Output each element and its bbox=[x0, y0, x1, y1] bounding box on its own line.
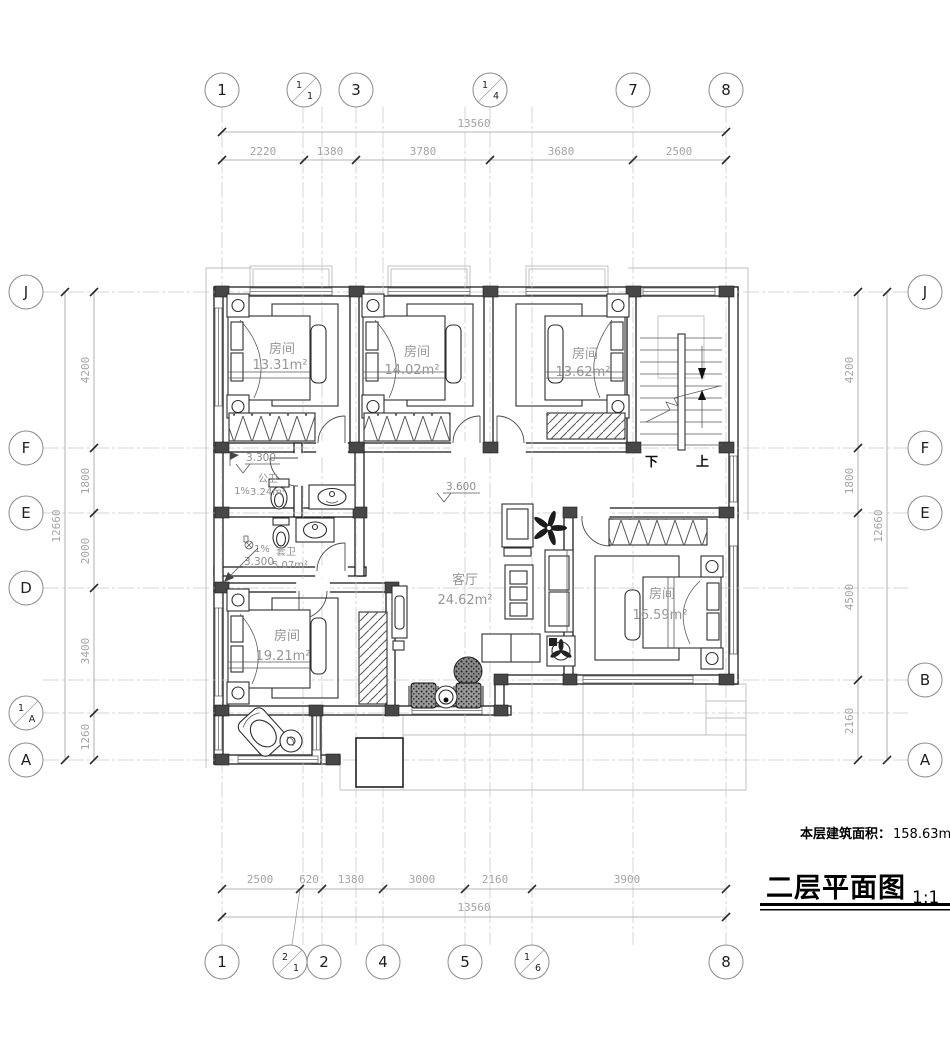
axis-label: 1 bbox=[482, 80, 488, 91]
axis-label: 1 bbox=[296, 80, 302, 91]
sink-icon bbox=[296, 518, 334, 542]
column bbox=[719, 442, 734, 453]
window bbox=[215, 608, 222, 696]
axis-label: 1 bbox=[293, 963, 299, 974]
column bbox=[309, 705, 323, 716]
dimension-ticks bbox=[61, 128, 891, 921]
column bbox=[563, 674, 577, 685]
stair-up-label: 上 bbox=[696, 455, 709, 470]
window bbox=[730, 456, 737, 502]
axis-label: J bbox=[922, 283, 927, 301]
level-label: 3.300 bbox=[246, 452, 276, 464]
dim-label: 2500 bbox=[666, 145, 693, 158]
axis-bubble: D bbox=[9, 571, 43, 605]
appliance-icon bbox=[547, 636, 575, 666]
level-triangle-icon bbox=[437, 493, 451, 502]
dim-label: 2220 bbox=[250, 145, 277, 158]
room-area: 14.02m² bbox=[384, 363, 439, 378]
axis-label: 2 bbox=[319, 953, 329, 971]
axis-label: E bbox=[920, 504, 929, 522]
dimension-lines: 13560 2220 1380 3780 3680 2500 13560 250… bbox=[50, 117, 891, 945]
axis-bubbles: 1 11 3 14 7 8 1 21 2 4 5 16 8 J F E D 1A… bbox=[9, 73, 942, 979]
dim-label: 3780 bbox=[410, 145, 437, 158]
room-area: 16.59m² bbox=[632, 608, 687, 623]
dim-label: 4200 bbox=[843, 357, 856, 384]
column bbox=[215, 507, 229, 518]
nightstand bbox=[227, 294, 249, 317]
column bbox=[719, 286, 734, 297]
dim-label: 2160 bbox=[482, 873, 509, 886]
dim-label: 620 bbox=[299, 873, 319, 886]
nightstand bbox=[607, 294, 629, 317]
round-table bbox=[435, 686, 457, 708]
column bbox=[494, 674, 508, 685]
axis-label: J bbox=[23, 283, 28, 301]
nightstand bbox=[227, 682, 249, 704]
axis-bubble: 11 bbox=[287, 73, 321, 107]
column bbox=[719, 674, 734, 685]
room-area: 19.21m² bbox=[255, 649, 310, 664]
slope-label: 1% bbox=[234, 486, 250, 497]
title-underline bbox=[760, 903, 950, 906]
window bbox=[313, 714, 320, 750]
window bbox=[526, 288, 608, 295]
room-name: 套卫 bbox=[276, 545, 296, 558]
axis-bubble: 1A bbox=[9, 696, 43, 730]
axis-label: B bbox=[920, 671, 930, 689]
axis-label: 7 bbox=[628, 81, 638, 99]
axis-bubble: 8 bbox=[709, 945, 743, 979]
axis-grid bbox=[43, 107, 908, 945]
axis-label: 1 bbox=[307, 91, 313, 102]
stair-stringer bbox=[678, 334, 685, 450]
wardrobe bbox=[547, 413, 625, 439]
sink-icon bbox=[309, 485, 355, 509]
room-name: 房间 bbox=[404, 344, 430, 360]
axis-label: A bbox=[920, 751, 931, 769]
potted-plant-icon bbox=[454, 657, 482, 685]
column bbox=[349, 442, 364, 453]
axis-label: 8 bbox=[721, 81, 731, 99]
axis-bubble: 16 bbox=[515, 945, 549, 979]
axis-label: 1 bbox=[524, 952, 530, 963]
title-underline bbox=[760, 909, 950, 911]
axis-label: F bbox=[921, 439, 930, 457]
title-block: 本层建筑面积： 158.63m² 二层平面图 1:1 bbox=[760, 826, 950, 911]
column bbox=[215, 442, 229, 453]
wardrobe bbox=[229, 413, 315, 441]
dim-label: 2160 bbox=[843, 708, 856, 735]
dim-label: 3400 bbox=[79, 638, 92, 665]
axis-bubble: A bbox=[908, 743, 942, 777]
room-name: 房间 bbox=[649, 586, 675, 602]
wall bbox=[214, 443, 639, 452]
dim-label: 3900 bbox=[614, 873, 641, 886]
room-area: 13.62m² bbox=[555, 365, 610, 380]
wall bbox=[484, 287, 493, 452]
floor-plan-drawing: 13560 2220 1380 3780 3680 2500 13560 250… bbox=[0, 0, 950, 1041]
room-name: 公卫 bbox=[258, 474, 278, 485]
coffee-table bbox=[482, 634, 540, 662]
level-label: 3.600 bbox=[446, 481, 476, 493]
room-area: 3.24m² bbox=[250, 487, 286, 498]
drawing-title: 二层平面图 bbox=[766, 873, 906, 904]
axis-bubble: F bbox=[9, 431, 43, 465]
armchair bbox=[502, 504, 533, 556]
wall bbox=[350, 287, 359, 452]
column bbox=[215, 705, 229, 716]
axis-bubble: A bbox=[9, 743, 43, 777]
column bbox=[483, 442, 498, 453]
axis-label: 6 bbox=[535, 963, 541, 974]
dim-label: 13560 bbox=[457, 117, 490, 130]
axis-label: E bbox=[21, 504, 30, 522]
dim-label: 2000 bbox=[79, 538, 92, 565]
room-area: 13.31m² bbox=[252, 358, 307, 373]
column bbox=[215, 754, 229, 765]
stair-down-label: 下 bbox=[645, 455, 658, 470]
axis-label: F bbox=[22, 439, 31, 457]
axis-bubble: B bbox=[908, 663, 942, 697]
axis-label: D bbox=[20, 579, 32, 597]
axis-bubble: J bbox=[908, 275, 942, 309]
axis-label: 2 bbox=[282, 952, 288, 963]
dim-label: 4200 bbox=[79, 357, 92, 384]
window bbox=[388, 288, 470, 295]
axis-label: 3 bbox=[351, 81, 361, 99]
armchair bbox=[454, 683, 483, 708]
window bbox=[250, 288, 332, 295]
axis-bubble: 7 bbox=[616, 73, 650, 107]
chimney-block bbox=[356, 738, 403, 787]
nightstand bbox=[362, 294, 384, 317]
side-table bbox=[505, 565, 533, 619]
nightstand bbox=[701, 556, 723, 577]
axis-bubble: 3 bbox=[339, 73, 373, 107]
armchair bbox=[409, 683, 438, 708]
nightstand bbox=[701, 648, 723, 669]
axis-label: A bbox=[21, 751, 32, 769]
room-area: 5.07m² bbox=[272, 560, 308, 571]
stairs: 下 上 bbox=[640, 334, 722, 470]
axis-bubble: 1 bbox=[205, 945, 239, 979]
floor-area-label: 本层建筑面积： bbox=[800, 826, 891, 842]
column bbox=[626, 442, 641, 453]
nightstand bbox=[227, 589, 249, 611]
dim-label: 12660 bbox=[50, 509, 63, 542]
dim-label: 1800 bbox=[843, 468, 856, 495]
window bbox=[215, 308, 222, 406]
dim-label: 1800 bbox=[79, 468, 92, 495]
dim-label: 3000 bbox=[409, 873, 436, 886]
dim-label: 1380 bbox=[317, 145, 344, 158]
axis-label: 1 bbox=[18, 703, 24, 714]
room-name: 房间 bbox=[269, 341, 295, 357]
level-triangle-icon bbox=[236, 464, 250, 473]
room-name: 客厅 bbox=[452, 572, 478, 588]
dim-label: 12660 bbox=[872, 509, 885, 542]
dim-label: 1380 bbox=[338, 873, 365, 886]
toilet-icon bbox=[273, 518, 289, 548]
axis-bubble: 2 bbox=[307, 945, 341, 979]
dim-label: 13560 bbox=[457, 901, 490, 914]
wardrobe bbox=[364, 413, 450, 441]
dim-label: 3680 bbox=[548, 145, 575, 158]
plant-icon bbox=[533, 510, 567, 546]
sofa bbox=[545, 550, 573, 632]
axis-label: 4 bbox=[378, 953, 388, 971]
room-area: 24.62m² bbox=[437, 593, 492, 608]
column bbox=[483, 286, 498, 297]
axis-label: A bbox=[29, 714, 36, 725]
flag-icon bbox=[230, 452, 239, 460]
axis-bubble: 14 bbox=[473, 73, 507, 107]
wardrobe bbox=[359, 612, 387, 704]
wardrobe bbox=[609, 519, 707, 545]
axis-bubble: 1 bbox=[205, 73, 239, 107]
axis-bubble: 4 bbox=[366, 945, 400, 979]
dim-label: 4500 bbox=[843, 584, 856, 611]
axis-label: 8 bbox=[721, 953, 731, 971]
column bbox=[563, 507, 577, 518]
axis-bubble: F bbox=[908, 431, 942, 465]
axis-bubble: E bbox=[908, 496, 942, 530]
axis-bubble: 5 bbox=[448, 945, 482, 979]
window bbox=[730, 546, 737, 654]
column bbox=[385, 705, 399, 716]
room-name: 房间 bbox=[274, 628, 300, 644]
column bbox=[494, 705, 508, 716]
column bbox=[326, 754, 340, 765]
axis-bubble: E bbox=[9, 496, 43, 530]
side-table-round bbox=[280, 730, 302, 752]
axis-bubble: J bbox=[9, 275, 43, 309]
floor-drain-icon bbox=[244, 536, 253, 549]
window bbox=[583, 676, 693, 683]
window bbox=[215, 714, 222, 750]
axis-label: 5 bbox=[460, 953, 470, 971]
axis-label: 1 bbox=[217, 81, 227, 99]
axis-bubble: 8 bbox=[709, 73, 743, 107]
axis-label: 4 bbox=[493, 91, 499, 102]
dim-label: 2500 bbox=[247, 873, 274, 886]
room-name: 房间 bbox=[572, 346, 598, 362]
axis-label: 1 bbox=[217, 953, 227, 971]
axis-bubble: 21 bbox=[273, 945, 307, 979]
floor-area-value: 158.63m² bbox=[893, 827, 950, 842]
window bbox=[238, 756, 318, 763]
dim-label: 1260 bbox=[79, 724, 92, 751]
window bbox=[643, 288, 715, 295]
column bbox=[719, 507, 734, 518]
